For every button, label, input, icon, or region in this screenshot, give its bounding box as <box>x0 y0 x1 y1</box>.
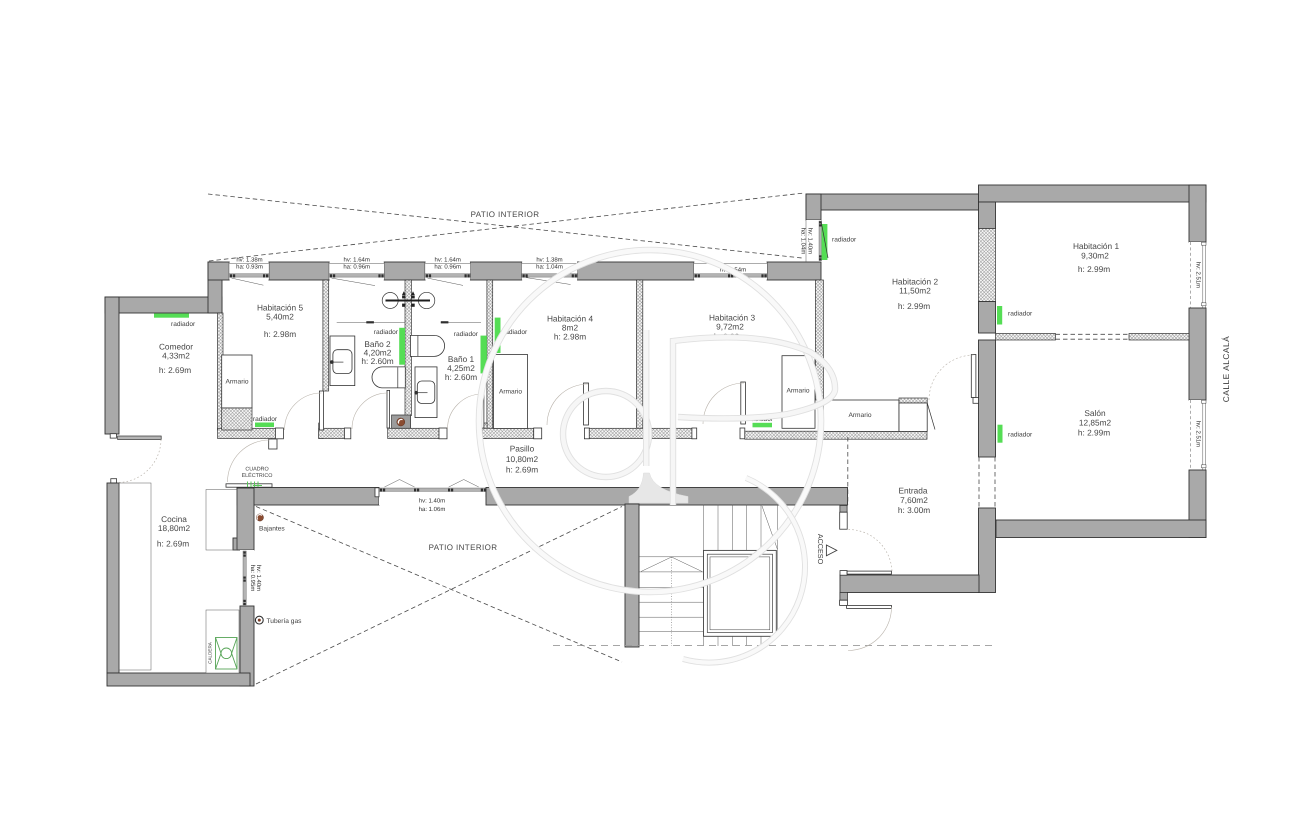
svg-text:ha: 0.96m: ha: 0.96m <box>343 264 370 271</box>
svg-text:ELÉCTRICO: ELÉCTRICO <box>242 472 273 479</box>
svg-text:hv: 1.40m: hv: 1.40m <box>806 228 813 254</box>
svg-text:Pasillo: Pasillo <box>510 444 535 454</box>
svg-text:ha: 0.93m: ha: 0.93m <box>236 264 263 271</box>
svg-text:ha: 1.06m: ha: 1.06m <box>419 506 446 513</box>
svg-text:h: 2.69m: h: 2.69m <box>506 465 538 475</box>
svg-text:h: 2.69m: h: 2.69m <box>157 539 189 549</box>
svg-text:11,50m2: 11,50m2 <box>899 286 931 296</box>
svg-text:h: 2.60m: h: 2.60m <box>445 372 477 382</box>
svg-text:h: 2.98m: h: 2.98m <box>554 332 586 342</box>
svg-text:7,60m2: 7,60m2 <box>900 495 928 505</box>
svg-text:5,40m2: 5,40m2 <box>266 312 294 322</box>
svg-text:h: 2.98m: h: 2.98m <box>264 329 296 339</box>
svg-text:ha: 0.95m: ha: 0.95m <box>249 565 256 592</box>
svg-text:hv: 2.51m: hv: 2.51m <box>1195 262 1202 288</box>
svg-text:h: 2.99m: h: 2.99m <box>1078 428 1110 438</box>
svg-text:12,85m2: 12,85m2 <box>1079 418 1112 428</box>
svg-text:CALLE ALCALÁ: CALLE ALCALÁ <box>1221 336 1231 403</box>
svg-text:Tubería gas: Tubería gas <box>267 618 303 625</box>
svg-text:Bajantes: Bajantes <box>259 526 285 533</box>
svg-text:9,30m2: 9,30m2 <box>1081 251 1109 261</box>
svg-text:PATIO INTERIOR: PATIO INTERIOR <box>429 543 498 552</box>
svg-text:h: 2.60m: h: 2.60m <box>361 356 393 366</box>
svg-text:hv: 1.64m: hv: 1.64m <box>435 256 461 263</box>
svg-text:radiador: radiador <box>1008 432 1033 439</box>
svg-text:18,80m2: 18,80m2 <box>158 523 191 533</box>
svg-text:CUADRO: CUADRO <box>245 467 268 473</box>
svg-text:hv: 1.38m: hv: 1.38m <box>236 256 262 263</box>
svg-text:hv: 1.40m: hv: 1.40m <box>255 565 262 591</box>
svg-text:hv: 1.64m: hv: 1.64m <box>344 256 370 263</box>
svg-text:ha: 1.04m: ha: 1.04m <box>536 264 563 271</box>
svg-text:h: 3.00m: h: 3.00m <box>898 505 930 515</box>
svg-text:h: 2.69m: h: 2.69m <box>159 365 191 375</box>
svg-text:radiador: radiador <box>454 331 479 338</box>
svg-text:ha: 0.96m: ha: 0.96m <box>434 264 461 271</box>
svg-text:Entrada: Entrada <box>898 486 927 496</box>
svg-text:h: 2.99m: h: 2.99m <box>1078 264 1110 274</box>
svg-text:radiador: radiador <box>171 321 196 328</box>
svg-text:radiador: radiador <box>253 416 278 423</box>
svg-text:Salón: Salón <box>1084 408 1106 418</box>
svg-text:radiador: radiador <box>832 237 857 244</box>
svg-text:Habitación 1: Habitación 1 <box>1073 241 1120 251</box>
svg-text:10,80m2: 10,80m2 <box>506 454 539 464</box>
svg-text:ha: 1.04m: ha: 1.04m <box>799 228 806 255</box>
svg-text:Armario: Armario <box>786 388 809 395</box>
svg-text:hv: 2.51m: hv: 2.51m <box>1195 421 1202 447</box>
svg-text:hv: 1.40m: hv: 1.40m <box>419 498 445 505</box>
svg-text:hv: 1.38m: hv: 1.38m <box>536 256 562 263</box>
svg-text:9,72m2: 9,72m2 <box>716 322 744 332</box>
svg-text:h: 2.99m: h: 2.99m <box>898 301 930 311</box>
svg-text:PATIO INTERIOR: PATIO INTERIOR <box>471 210 540 219</box>
svg-text:CALDERA: CALDERA <box>208 641 213 664</box>
svg-text:radiador: radiador <box>374 329 399 336</box>
svg-text:Armario: Armario <box>499 389 522 396</box>
svg-text:radiador: radiador <box>1008 311 1033 318</box>
svg-text:Armario: Armario <box>225 379 248 386</box>
svg-text:Armario: Armario <box>848 412 871 419</box>
svg-text:4,33m2: 4,33m2 <box>162 351 190 361</box>
svg-text:ACCESO: ACCESO <box>816 534 825 565</box>
